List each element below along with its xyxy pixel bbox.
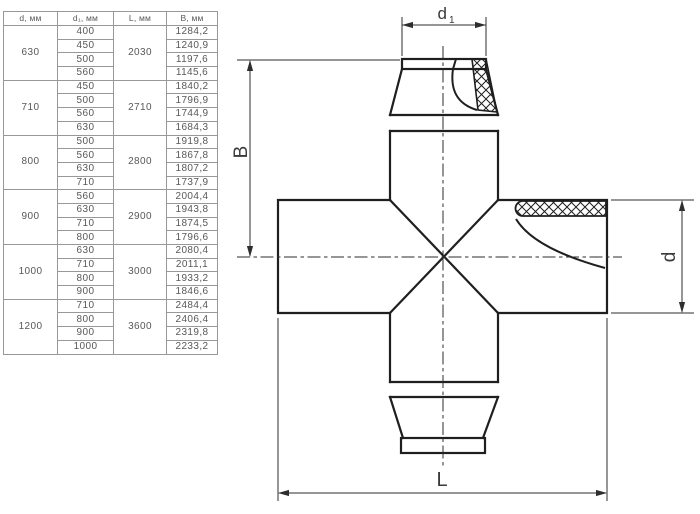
cutaway-right: [516, 201, 607, 268]
dim-B: [237, 60, 400, 256]
dimension-labels: d 1 B d L: [231, 4, 680, 491]
centerlines: [237, 46, 622, 466]
cross-fitting-drawing: d 1 B d L: [0, 0, 700, 514]
arrow-d1-right: [475, 22, 486, 28]
label-L: L: [436, 469, 447, 491]
hatch-casing-top: [472, 59, 497, 112]
arrow-d-top: [679, 200, 685, 211]
dim-d: [611, 200, 694, 313]
label-B: B: [231, 146, 252, 159]
dimension-lines: [237, 17, 694, 501]
bottom-cone: [390, 397, 498, 438]
arrow-L-left: [278, 490, 289, 496]
label-d1: d: [438, 4, 447, 23]
arrow-B-top: [247, 60, 253, 71]
arrow-B-bottom: [247, 246, 253, 257]
label-d1-subscript: 1: [449, 15, 455, 26]
bottom-band: [390, 382, 498, 397]
arrow-d-bottom: [679, 302, 685, 313]
arrow-d1-left: [402, 22, 413, 28]
hatch-casing-right: [516, 201, 607, 216]
top-body-sides: [390, 131, 498, 200]
label-d: d: [659, 252, 680, 263]
cut-curve-right: [516, 219, 605, 268]
dimension-arrows: [247, 22, 685, 496]
arrow-L-right: [596, 490, 607, 496]
spec-sheet: d, мм d₁, мм L, мм B, мм 630 400 2030 12…: [0, 0, 700, 514]
top-band: [390, 115, 498, 131]
bottom-body-sides: [390, 313, 498, 382]
cutaway-top: [452, 59, 497, 112]
